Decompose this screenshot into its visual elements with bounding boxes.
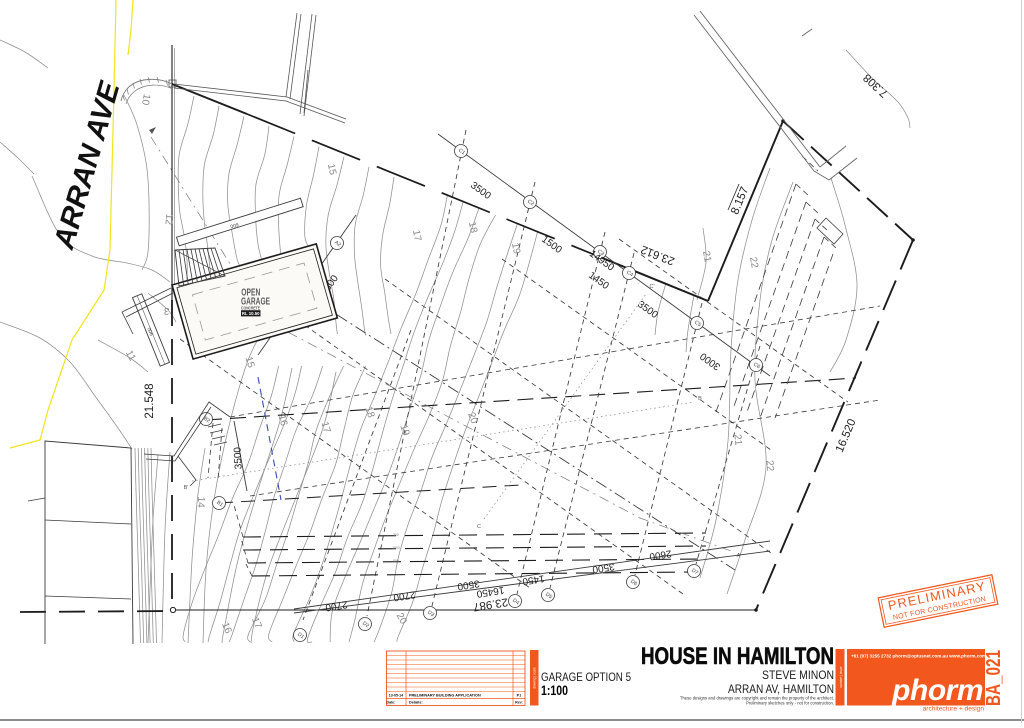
- svg-text:GARAGE OPTION 5: GARAGE OPTION 5: [541, 670, 631, 684]
- svg-text:number | issue: number | issue: [839, 666, 843, 687]
- svg-text:A': A': [737, 553, 742, 559]
- svg-text:+61 (07) 3255 2732 phorm@optu: +61 (07) 3255 2732 phorm@optusnet.com.au…: [851, 654, 993, 659]
- svg-text:300: 300: [393, 533, 399, 537]
- svg-text:drawing | scale: drawing | scale: [533, 667, 537, 688]
- svg-text:ARRAN AV, HAMILTON: ARRAN AV, HAMILTON: [728, 682, 834, 696]
- svg-text:Date:: Date:: [387, 701, 396, 705]
- svg-text:B': B': [184, 485, 189, 491]
- svg-text:CONCRETE: CONCRETE: [241, 305, 260, 310]
- svg-text:B: B: [698, 396, 702, 402]
- svg-text:Details:: Details:: [409, 701, 423, 705]
- svg-text:14: 14: [195, 496, 207, 508]
- svg-text:22: 22: [764, 460, 776, 472]
- svg-text:HOUSE IN HAMILTON: HOUSE IN HAMILTON: [641, 643, 834, 670]
- svg-text:13-05-14: 13-05-14: [389, 694, 403, 698]
- svg-text:RL 10.50: RL 10.50: [242, 311, 260, 316]
- svg-text:architecture + design: architecture + design: [923, 706, 985, 713]
- svg-text:Preliminary sketches only - no: Preliminary sketches only - not for cons…: [746, 701, 834, 706]
- svg-text:P1: P1: [517, 694, 522, 698]
- svg-text:12: 12: [162, 213, 174, 225]
- svg-text:21: 21: [732, 434, 744, 446]
- svg-text:3500: 3500: [232, 446, 244, 469]
- svg-text:800: 800: [393, 559, 399, 563]
- svg-text:C: C: [477, 524, 481, 530]
- svg-text:STEVE MINON: STEVE MINON: [762, 668, 834, 682]
- svg-text:Rev:: Rev:: [515, 701, 523, 705]
- svg-text:1:100: 1:100: [541, 683, 568, 698]
- svg-text:phorm: phorm: [891, 674, 983, 707]
- svg-text:PRELIMINARY BUILDING APPLICATI: PRELIMINARY BUILDING APPLICATION: [409, 694, 481, 698]
- svg-text:BA_021: BA_021: [983, 650, 1005, 706]
- svg-text:21.548: 21.548: [144, 383, 156, 418]
- svg-text:1500: 1500: [392, 546, 400, 550]
